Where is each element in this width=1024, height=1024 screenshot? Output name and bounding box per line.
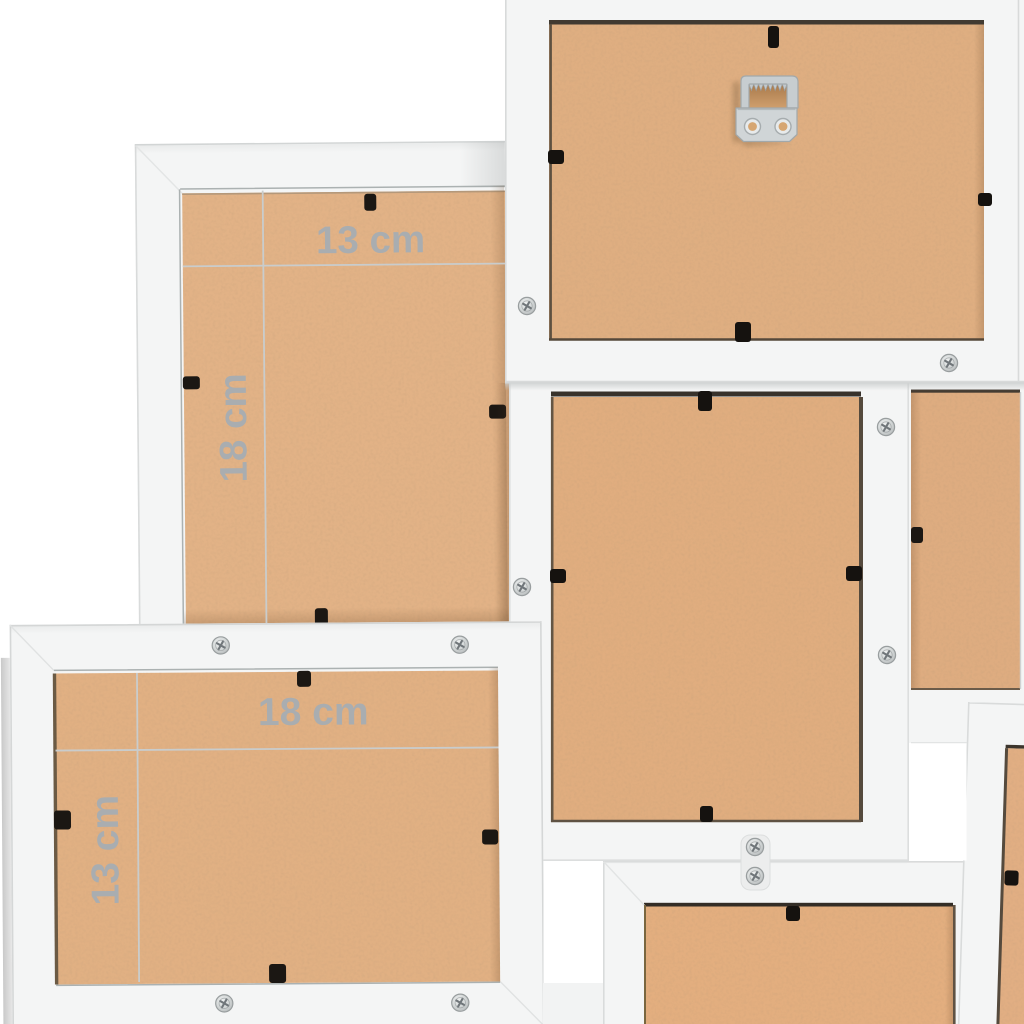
svg-text:18 cm: 18 cm (258, 690, 369, 734)
svg-text:13 cm: 13 cm (84, 795, 128, 906)
svg-text:18 cm: 18 cm (212, 373, 256, 483)
svg-text:13 cm: 13 cm (316, 218, 426, 262)
